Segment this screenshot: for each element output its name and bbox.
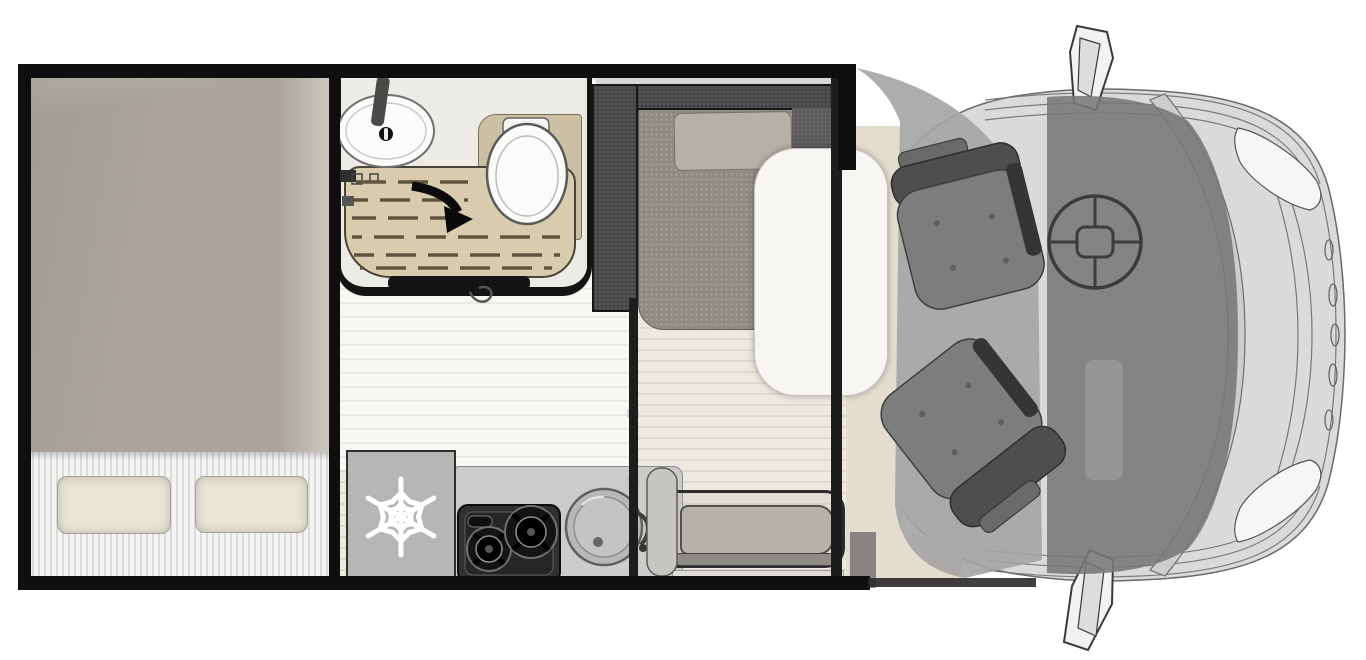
gas-hob: [458, 505, 560, 582]
wall-right-top: [838, 64, 856, 170]
door-hinges: [330, 300, 638, 485]
snowflake-icon: [364, 479, 439, 555]
sink-drain: [593, 537, 603, 547]
fixtures-layer: [0, 0, 1366, 660]
toilet: [487, 118, 567, 224]
wall-top: [18, 64, 856, 78]
partition-corridor: [629, 298, 638, 586]
washbasin: [338, 75, 434, 167]
floor-plan-canvas: [0, 0, 1366, 660]
wall-bottom-cab-extension: [868, 578, 1036, 587]
swivel-arrow-icon: [412, 186, 473, 233]
hob-control: [468, 516, 492, 527]
wall-bed-divider: [329, 76, 340, 586]
burner-large: [505, 506, 557, 558]
bathroom-door: [388, 276, 530, 302]
wall-left: [18, 64, 31, 590]
wall-bottom: [18, 576, 870, 590]
worktop-end-panel: [647, 468, 677, 576]
